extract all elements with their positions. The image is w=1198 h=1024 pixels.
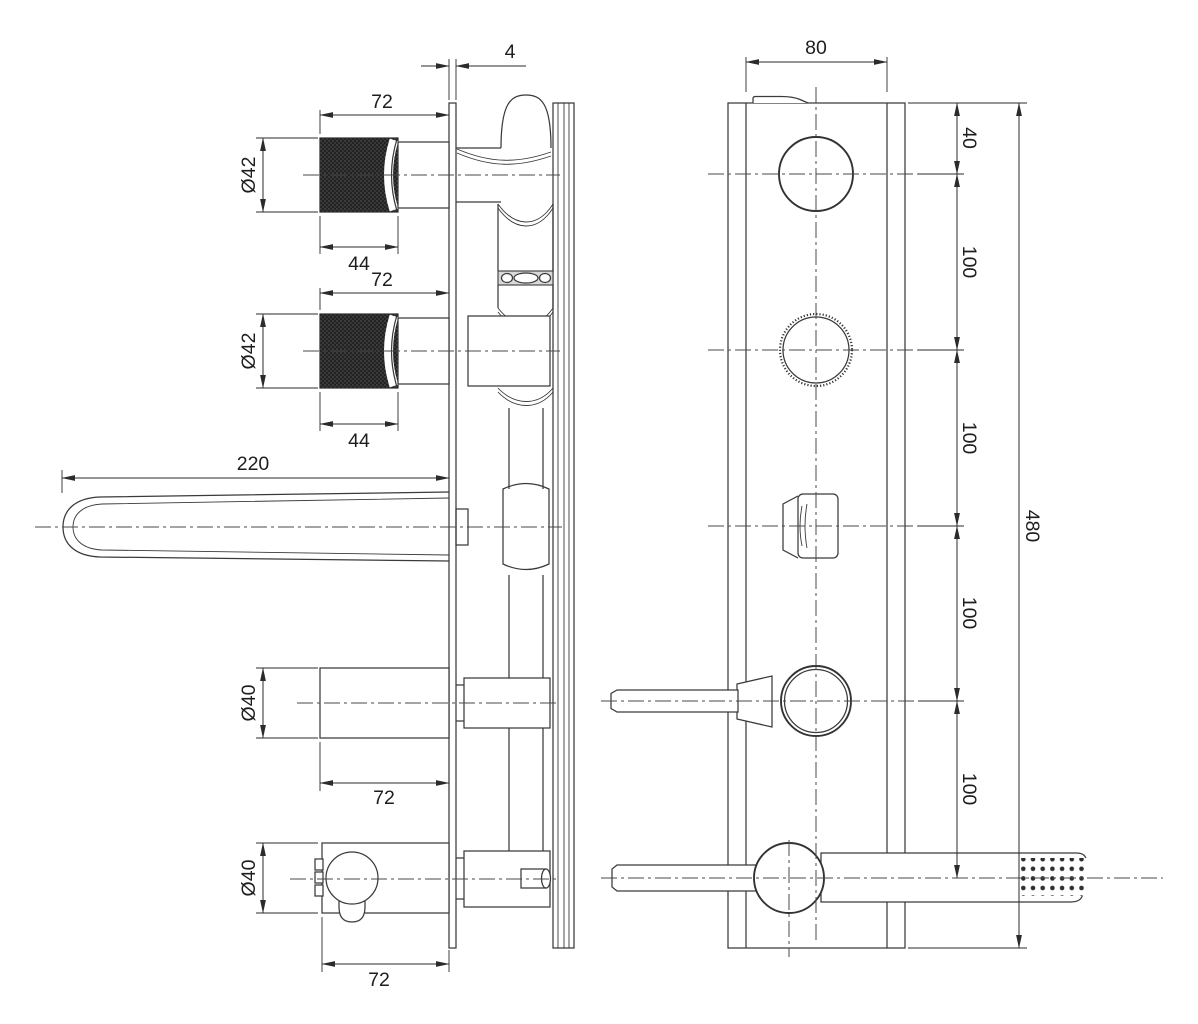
dim-knob-top-length: 72 — [371, 91, 393, 113]
spray-face-dots — [1021, 858, 1088, 896]
dim-top-to-axis1: 40 — [958, 127, 980, 149]
dim-plate-height: 480 — [1021, 510, 1043, 543]
dim-outlet-diameter: Ø40 — [238, 684, 260, 721]
mounting-slot-band — [498, 271, 553, 285]
dim-axis1-to-axis2: 100 — [958, 246, 980, 279]
dim-plate-width: 80 — [805, 37, 827, 59]
dim-spout-length: 220 — [237, 453, 270, 475]
dim-knob-bottom-grip-length: 44 — [348, 430, 370, 452]
technical-drawing-canvas: 4 72 Ø42 44 72 Ø42 44 220 Ø40 72 Ø40 72 … — [0, 0, 1198, 1024]
dim-axis2-to-axis3: 100 — [958, 422, 980, 455]
dim-bracket-diameter: Ø40 — [238, 859, 260, 896]
dim-knob-top-diameter: Ø42 — [238, 157, 260, 194]
dim-outlet-length: 72 — [373, 787, 395, 809]
dim-axis3-to-axis4: 100 — [958, 597, 980, 630]
dim-knob-top-grip-length: 44 — [348, 253, 370, 275]
dim-plate-thickness: 4 — [505, 41, 516, 63]
dim-knob-bottom-diameter: Ø42 — [238, 333, 260, 370]
dim-knob-bottom-length: 72 — [371, 269, 393, 291]
dim-bracket-length: 72 — [368, 969, 390, 991]
dim-axis4-to-axis5: 100 — [958, 773, 980, 806]
technical-drawing-page: 4 72 Ø42 44 72 Ø42 44 220 Ø40 72 Ø40 72 … — [0, 0, 1198, 1024]
